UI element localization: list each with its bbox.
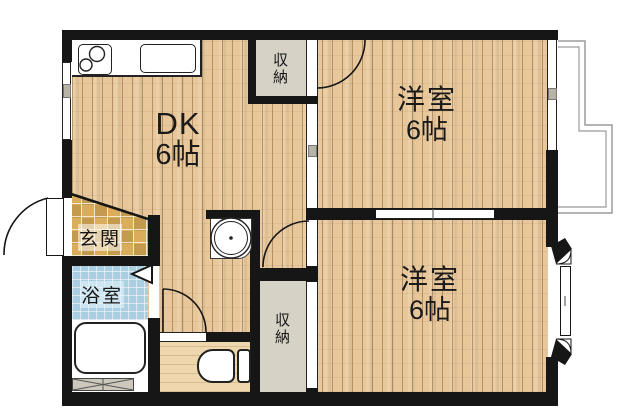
room2-bay-window bbox=[560, 266, 571, 336]
wall-hall-left bbox=[148, 318, 160, 392]
room2-door-gap bbox=[306, 220, 318, 266]
washing-machine-pan bbox=[72, 378, 134, 391]
dk-name: DK bbox=[128, 107, 228, 140]
closet-top-label: 収納 bbox=[272, 52, 287, 86]
closet-bottom-label: 収納 bbox=[274, 312, 289, 346]
room2-window-gap bbox=[548, 247, 558, 357]
entrance-label: 玄関 bbox=[78, 224, 122, 251]
entrance-door-leaf bbox=[46, 198, 64, 256]
toilet-icon bbox=[197, 349, 235, 383]
wall-toilet-top bbox=[206, 332, 250, 342]
toilet-tank bbox=[237, 349, 251, 383]
wall-outer-left bbox=[62, 40, 72, 62]
balcony-outline bbox=[558, 41, 612, 213]
sliding-door-room1-room2 bbox=[376, 209, 494, 219]
bathroom-door-gap bbox=[149, 266, 159, 318]
wall-outer-left bbox=[62, 140, 72, 198]
wall-outer-right bbox=[546, 357, 558, 406]
bathtub-icon bbox=[74, 322, 146, 374]
balcony-outline-inner bbox=[558, 47, 606, 207]
closet-top-door bbox=[306, 40, 318, 96]
room-label-dk: DK 6帖 bbox=[128, 107, 228, 172]
kitchen-window-sash bbox=[63, 84, 71, 98]
toilet-door-gap bbox=[160, 332, 206, 342]
wall-hall-room2 bbox=[306, 388, 318, 394]
sliding-door-handle bbox=[308, 145, 317, 157]
floor-plan: DK 6帖 洋室 6帖 洋室 6帖 玄関 浴室 収納 収納 bbox=[0, 0, 626, 413]
wall-storage2-top bbox=[260, 268, 318, 281]
dk-size: 6帖 bbox=[128, 140, 228, 171]
stove-icon bbox=[78, 44, 112, 75]
closet-bottom-door bbox=[306, 282, 318, 388]
wall-outer-bottom bbox=[62, 392, 558, 406]
wall-closet-top-left bbox=[248, 40, 256, 104]
wall-closet-top-bottom bbox=[248, 96, 318, 104]
entrance-door-gap bbox=[63, 198, 72, 256]
entrance-door-swing-arc bbox=[4, 198, 48, 255]
wall-outer-left bbox=[62, 256, 72, 406]
bathroom-label: 浴室 bbox=[80, 281, 124, 308]
washbasin-counter bbox=[210, 218, 252, 259]
room1-window-sash bbox=[548, 88, 557, 100]
room-label-western-1: 洋室 6帖 bbox=[377, 85, 477, 145]
kitchen-window bbox=[62, 62, 71, 140]
kitchen-sink-icon bbox=[140, 44, 196, 73]
room-label-western-2: 洋室 6帖 bbox=[380, 265, 480, 325]
wall-outer-top bbox=[62, 30, 558, 40]
wall-outer-right bbox=[546, 150, 558, 247]
wall-entrance-bottom bbox=[62, 256, 160, 266]
